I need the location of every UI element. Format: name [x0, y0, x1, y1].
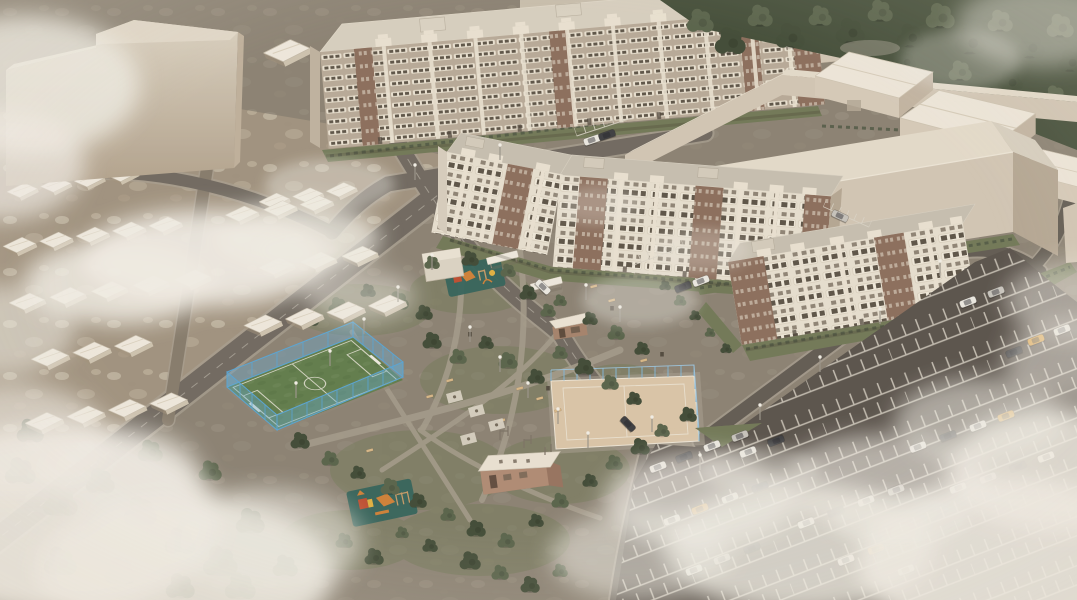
aerial-render: Aerial 3D visualization of a residential…	[0, 0, 1077, 600]
edge-haze	[0, 0, 1077, 600]
aerial-render-stage: Aerial 3D visualization of a residential…	[0, 0, 1077, 600]
